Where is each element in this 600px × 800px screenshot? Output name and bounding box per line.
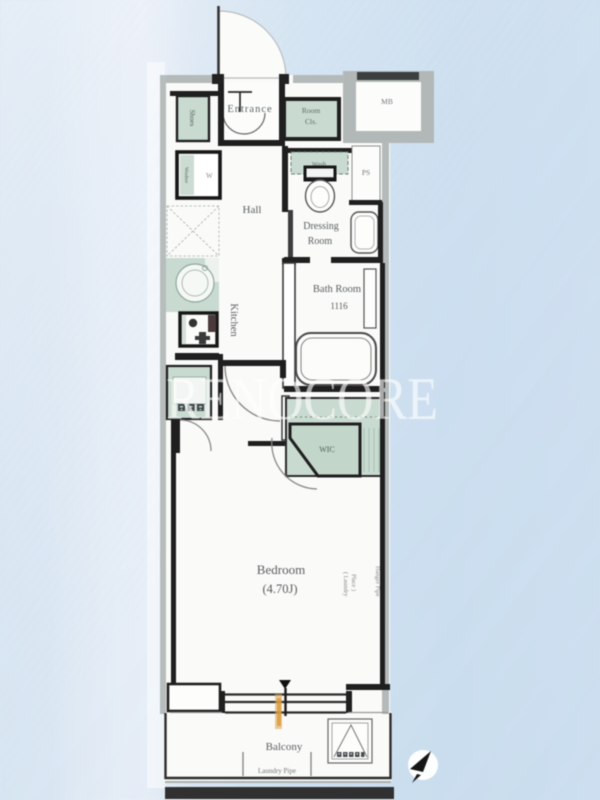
svg-text:Hall: Hall [243,204,262,216]
svg-text:RENOCORE: RENOCORE [166,366,438,432]
svg-text:Laundry Pipe: Laundry Pipe [258,767,296,775]
svg-text:Bedroom: Bedroom [257,562,305,577]
svg-text:Place ): Place ) [350,574,357,591]
svg-text:PS: PS [362,168,370,177]
svg-text:Shoes: Shoes [188,110,196,127]
svg-text:Entrance: Entrance [227,104,272,115]
svg-text:Room: Room [308,236,333,247]
svg-text:Dressing: Dressing [303,221,339,232]
svg-text:(4.70J): (4.70J) [262,582,297,596]
svg-text:Balcony: Balcony [266,741,303,753]
svg-text:( Laundry: ( Laundry [342,572,349,597]
svg-text:W: W [206,172,213,180]
svg-text:1116: 1116 [330,301,348,311]
svg-text:Hanger Pipe: Hanger Pipe [374,566,381,597]
svg-text:MB: MB [381,97,393,106]
svg-text:Cls.: Cls. [305,117,317,126]
svg-text:Bath Room: Bath Room [313,284,361,295]
svg-text:Washer: Washer [183,167,189,184]
svg-text:Kitchen: Kitchen [228,303,239,337]
svg-text:Room: Room [302,106,321,115]
svg-text:WIC: WIC [319,445,335,454]
